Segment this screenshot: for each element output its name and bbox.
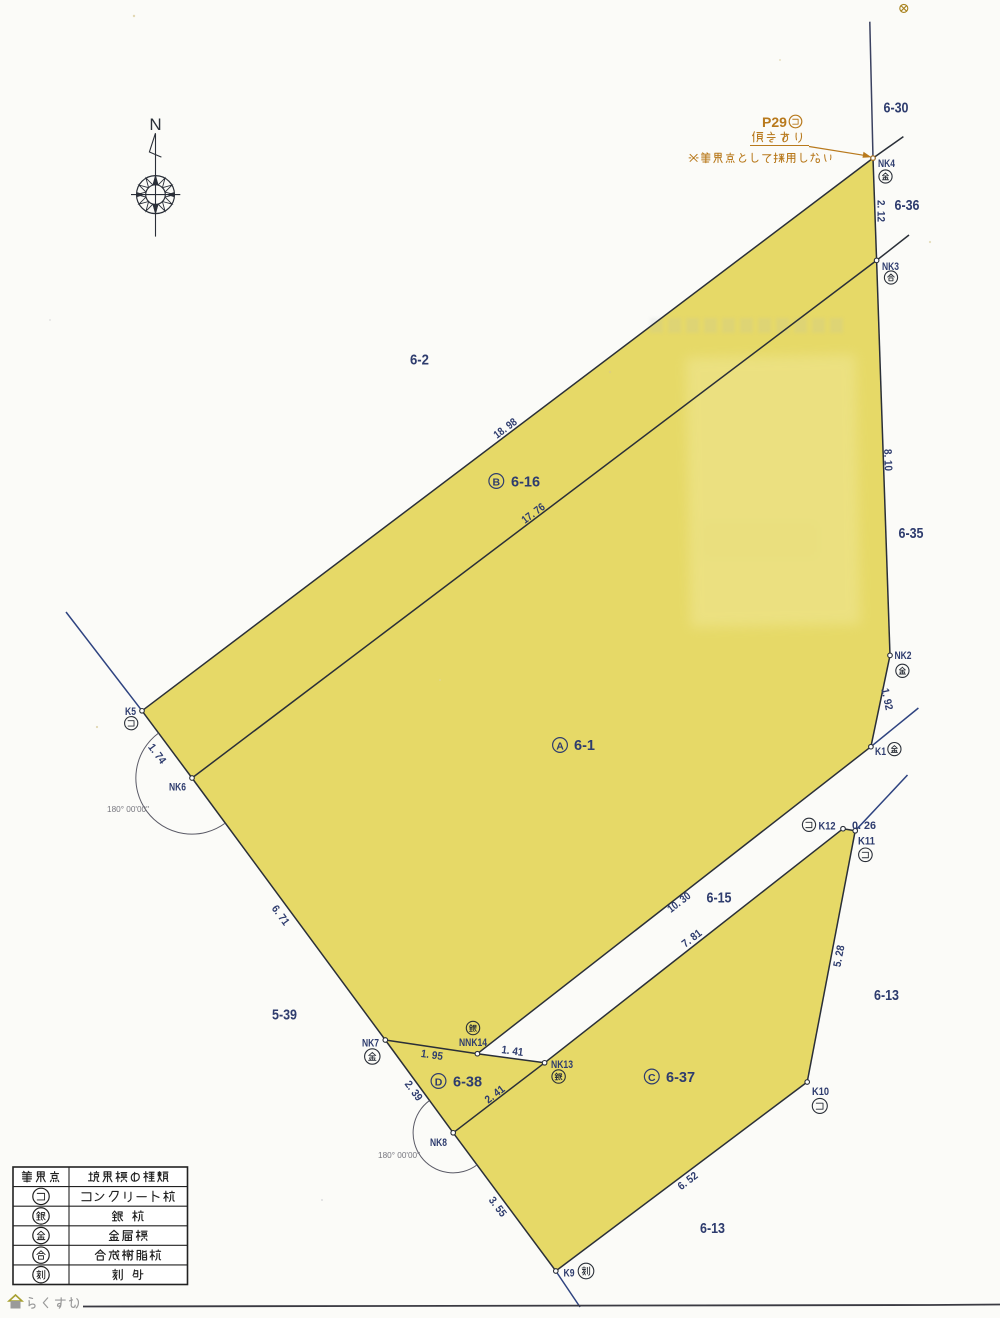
svg-text:1. 92: 1. 92 [878,687,894,711]
svg-text:NNK14: NNK14 [459,1037,488,1049]
svg-text:N: N [149,115,161,134]
svg-text:6-38: 6-38 [453,1075,482,1091]
svg-text:6-2: 6-2 [410,352,429,369]
svg-text:6-13: 6-13 [874,987,899,1004]
svg-text:180° 00'00": 180° 00'00" [378,1150,420,1160]
svg-text:NK2: NK2 [895,650,912,662]
svg-text:6-15: 6-15 [707,890,732,907]
svg-text:K10: K10 [812,1086,829,1098]
svg-text:6-35: 6-35 [899,525,924,542]
svg-text:8. 10: 8. 10 [881,449,894,471]
svg-text:D: D [435,1077,443,1089]
svg-text:2. 12: 2. 12 [875,200,887,222]
svg-text:NK4: NK4 [878,158,896,170]
svg-text:6-1: 6-1 [574,738,595,754]
svg-text:P29: P29 [762,114,787,130]
svg-text:A: A [556,741,564,753]
svg-text:K1: K1 [875,746,886,758]
svg-text:K9: K9 [564,1268,575,1280]
svg-text:NK6: NK6 [169,782,186,794]
svg-text:0. 26: 0. 26 [852,820,876,832]
svg-text:6-30: 6-30 [884,100,909,117]
svg-text:NK7: NK7 [362,1038,379,1050]
svg-text:C: C [648,1072,656,1084]
svg-text:6-36: 6-36 [895,197,920,214]
svg-text:1. 74: 1. 74 [145,742,168,767]
svg-text:6-13: 6-13 [700,1220,725,1237]
svg-text:5. 28: 5. 28 [831,944,847,968]
svg-text:180° 00'00": 180° 00'00" [107,804,149,814]
svg-text:K11: K11 [858,836,875,848]
svg-text:6-16: 6-16 [511,475,540,491]
svg-text:NK13: NK13 [551,1059,573,1071]
svg-text:K12: K12 [819,821,836,833]
svg-text:NK8: NK8 [430,1137,447,1149]
svg-text:B: B [493,477,501,489]
svg-text:6-37: 6-37 [666,1070,695,1086]
svg-text:5-39: 5-39 [272,1007,297,1024]
